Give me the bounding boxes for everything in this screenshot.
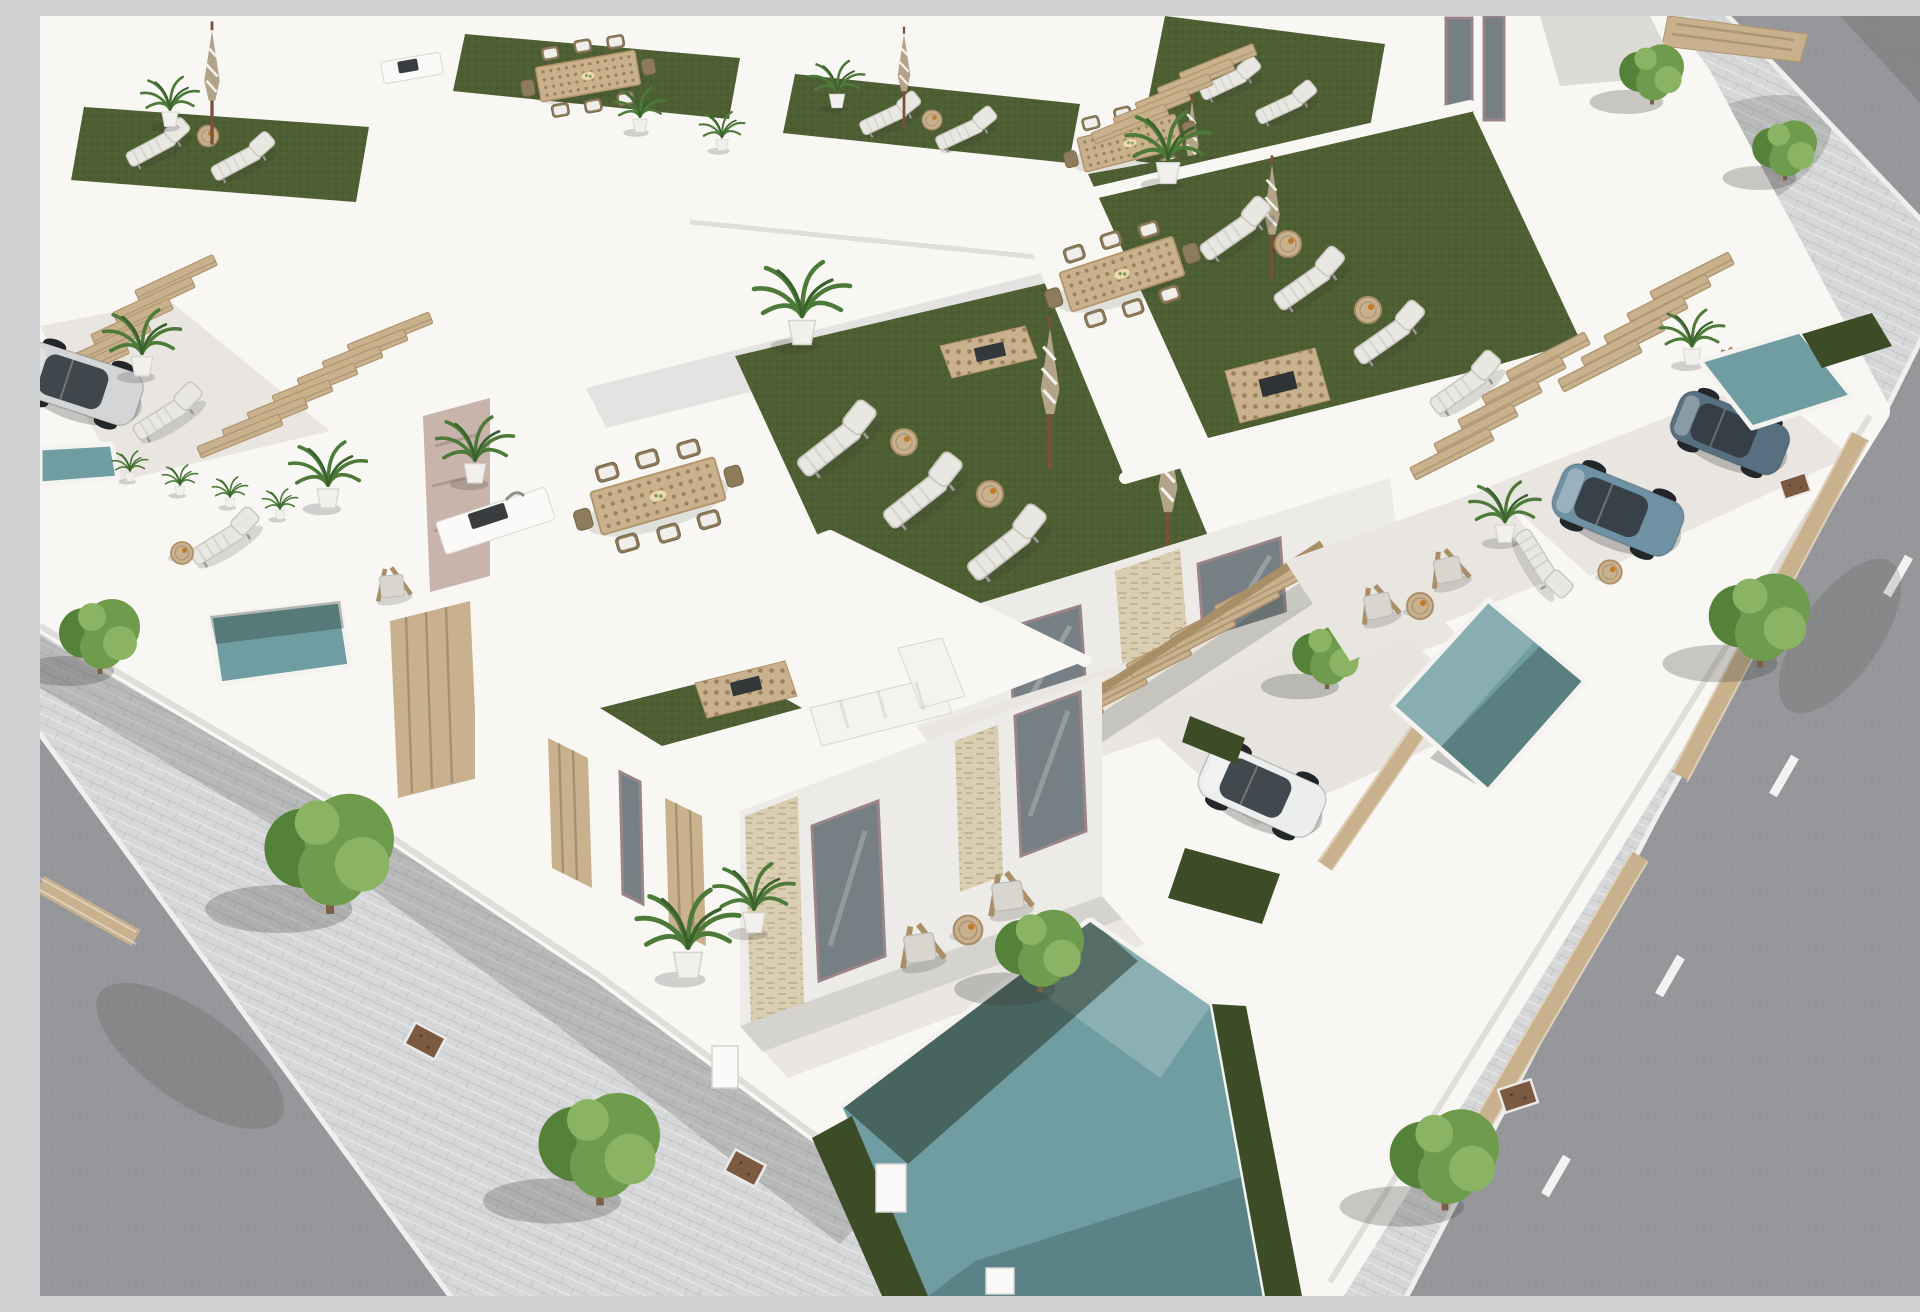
architectural-render: Aerial 3D architectural render of a mode… xyxy=(40,16,1920,1296)
stone-cladding xyxy=(745,796,804,1026)
wood-slat-door xyxy=(548,738,592,888)
window xyxy=(620,772,643,904)
render-canvas: Aerial 3D architectural render of a mode… xyxy=(40,16,1920,1296)
glass-door xyxy=(1015,692,1086,856)
stone-cladding xyxy=(955,725,1003,892)
wood-slat-gate xyxy=(390,601,478,798)
